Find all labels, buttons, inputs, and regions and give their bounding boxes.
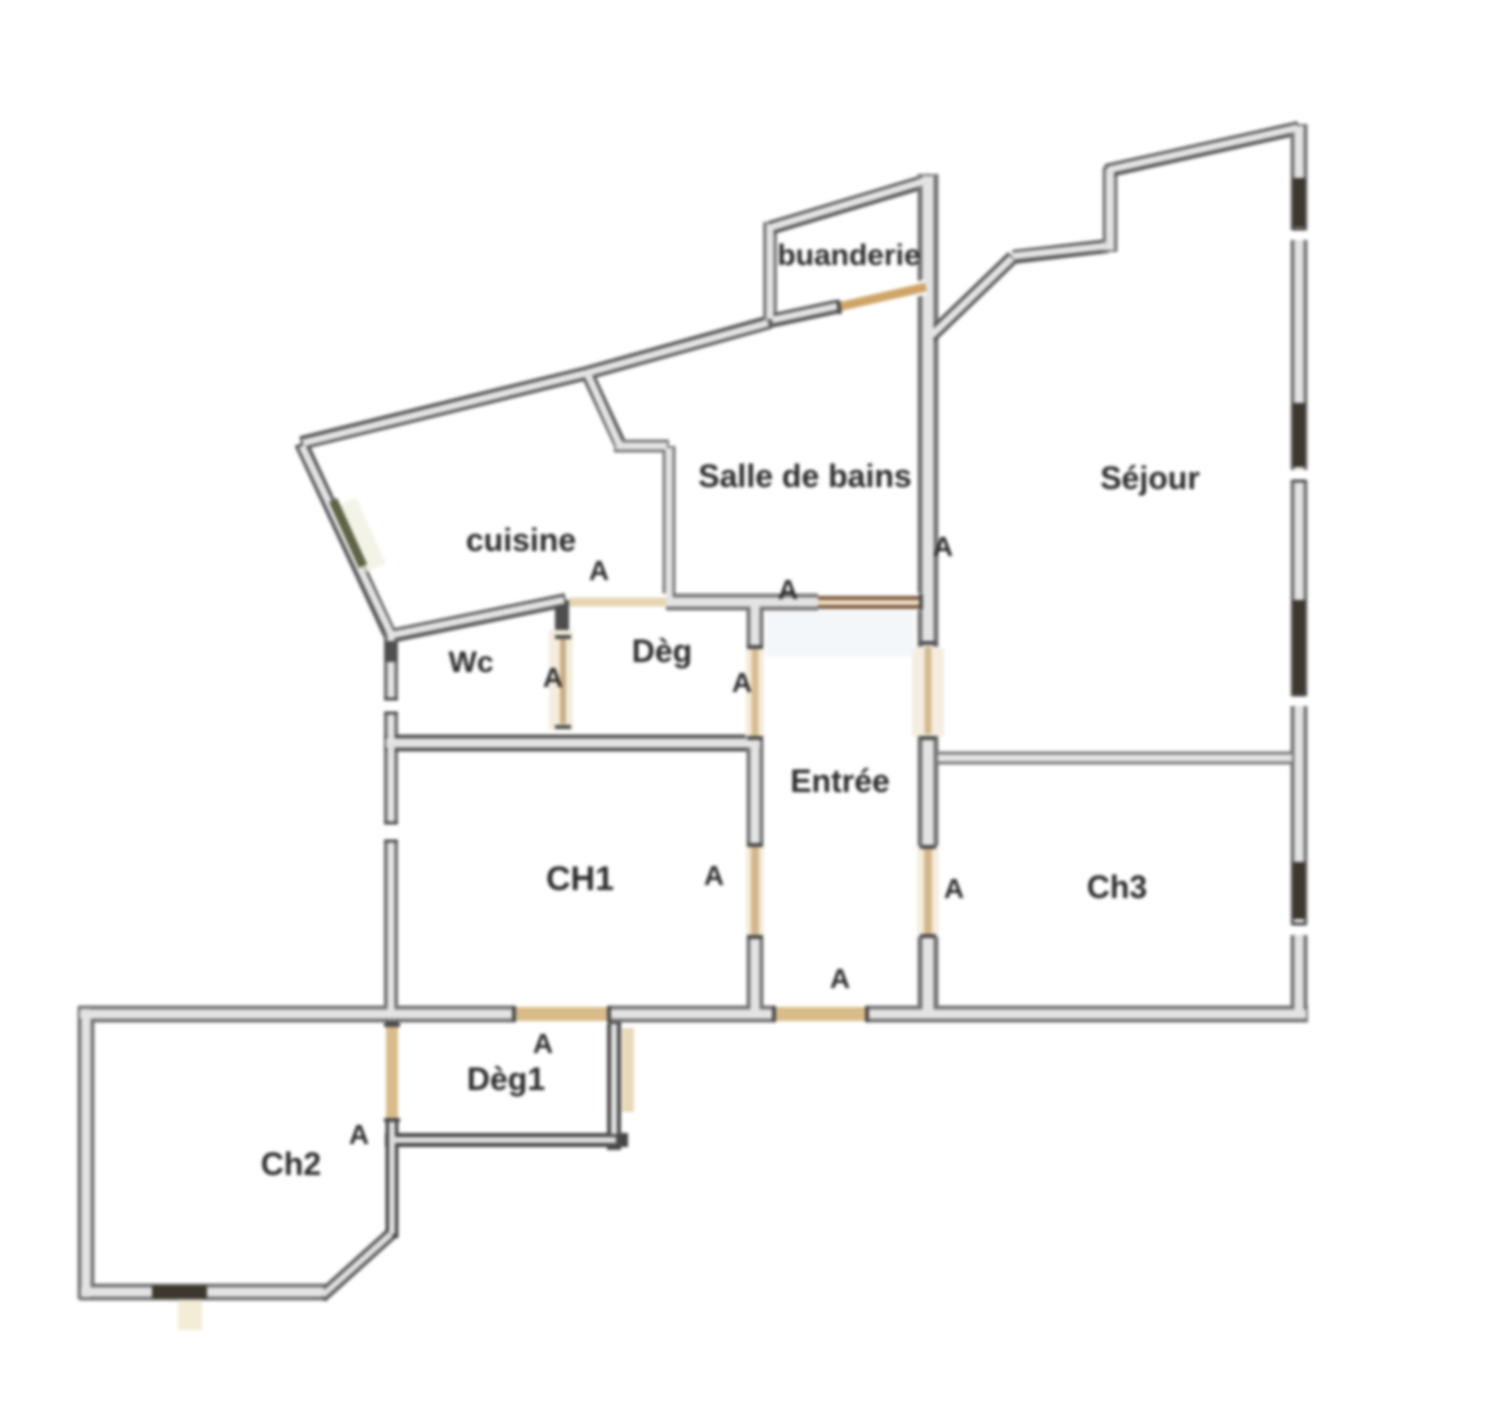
svg-text:Salle de bains: Salle de bains	[698, 458, 911, 494]
svg-text:CH1: CH1	[546, 860, 614, 898]
svg-text:Séjour: Séjour	[1100, 460, 1200, 496]
svg-text:Dèg1: Dèg1	[467, 1061, 545, 1097]
svg-text:Ch2: Ch2	[261, 1146, 321, 1182]
svg-text:Entrée: Entrée	[790, 763, 890, 799]
svg-text:A: A	[349, 1119, 369, 1150]
svg-text:A: A	[589, 555, 609, 586]
svg-text:A: A	[732, 667, 752, 698]
svg-text:Ch3: Ch3	[1087, 869, 1147, 905]
svg-text:A: A	[704, 860, 724, 891]
svg-text:A: A	[778, 574, 798, 605]
svg-text:cuisine: cuisine	[466, 522, 576, 558]
svg-text:A: A	[933, 531, 953, 562]
svg-text:Wc: Wc	[449, 646, 494, 679]
svg-text:A: A	[533, 1028, 553, 1059]
svg-text:A: A	[543, 662, 563, 693]
svg-text:buanderie: buanderie	[777, 239, 920, 272]
svg-text:A: A	[830, 963, 850, 994]
svg-text:Dèg: Dèg	[632, 633, 692, 669]
svg-text:A: A	[944, 873, 964, 904]
